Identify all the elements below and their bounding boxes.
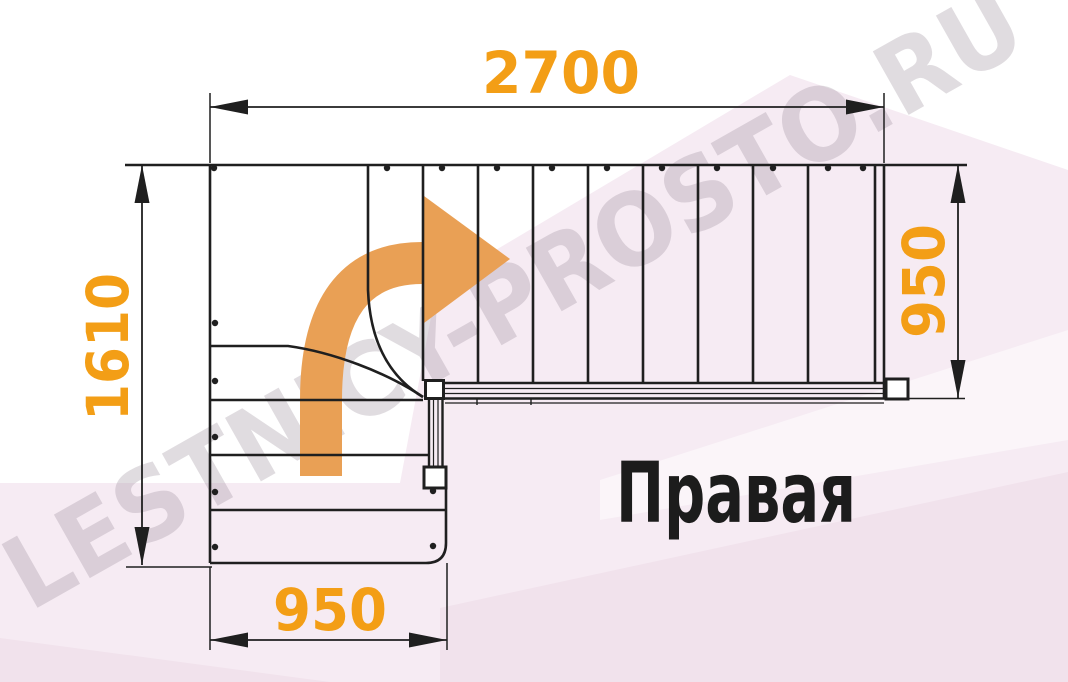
- dim-arrowhead: [210, 100, 248, 115]
- newel-post-corner: [426, 381, 444, 399]
- dim-label-left-height: 1610: [74, 273, 142, 421]
- dot: [212, 378, 218, 384]
- dot: [212, 320, 218, 326]
- dot: [714, 165, 720, 171]
- dot: [430, 543, 436, 549]
- dim-label-right-height: 950: [890, 224, 958, 338]
- dot: [770, 165, 776, 171]
- dot: [211, 165, 217, 171]
- dot: [494, 165, 500, 171]
- dot: [212, 434, 218, 440]
- dot: [604, 165, 610, 171]
- dot: [384, 165, 390, 171]
- dot: [659, 165, 665, 171]
- dot: [212, 489, 218, 495]
- stair-plan-drawing: LESTNICY-PROSTO.RU: [0, 0, 1068, 682]
- newel-post-lower: [424, 467, 446, 488]
- stair-plan-canvas: LESTNICY-PROSTO.RU: [0, 0, 1068, 682]
- dot: [825, 165, 831, 171]
- dot: [549, 165, 555, 171]
- dim-label-top-width: 2700: [482, 39, 640, 107]
- newel-post-right: [886, 379, 908, 399]
- dot: [430, 488, 436, 494]
- dim-label-bottom-width: 950: [273, 576, 387, 644]
- dim-arrowhead: [135, 165, 150, 203]
- dot: [212, 544, 218, 550]
- stair-type-label: Правая: [616, 444, 856, 542]
- dot: [860, 165, 866, 171]
- dot: [439, 165, 445, 171]
